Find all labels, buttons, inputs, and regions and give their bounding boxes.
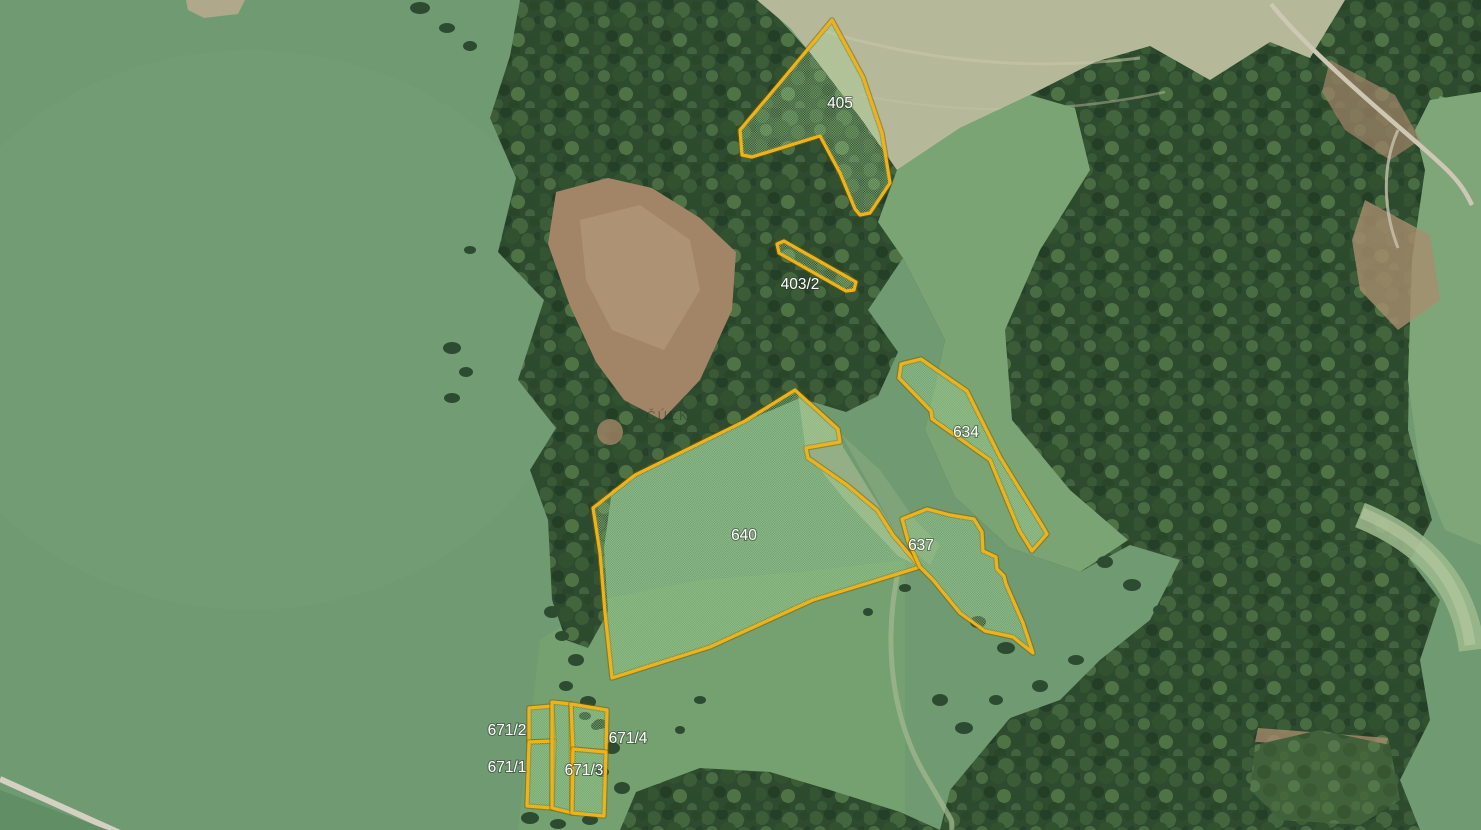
satellite-imagery: ČÚZK — [0, 0, 1481, 830]
parcel-671/4[interactable] — [571, 704, 607, 752]
watermark: ČÚZK — [646, 408, 689, 423]
clearing-blob — [597, 419, 623, 445]
forest-young-bottom-right — [1250, 730, 1400, 825]
map-canvas[interactable]: ČÚZK 405403/2634640637671/2671/1671/4671… — [0, 0, 1481, 830]
parcel-671/3[interactable] — [572, 749, 606, 816]
